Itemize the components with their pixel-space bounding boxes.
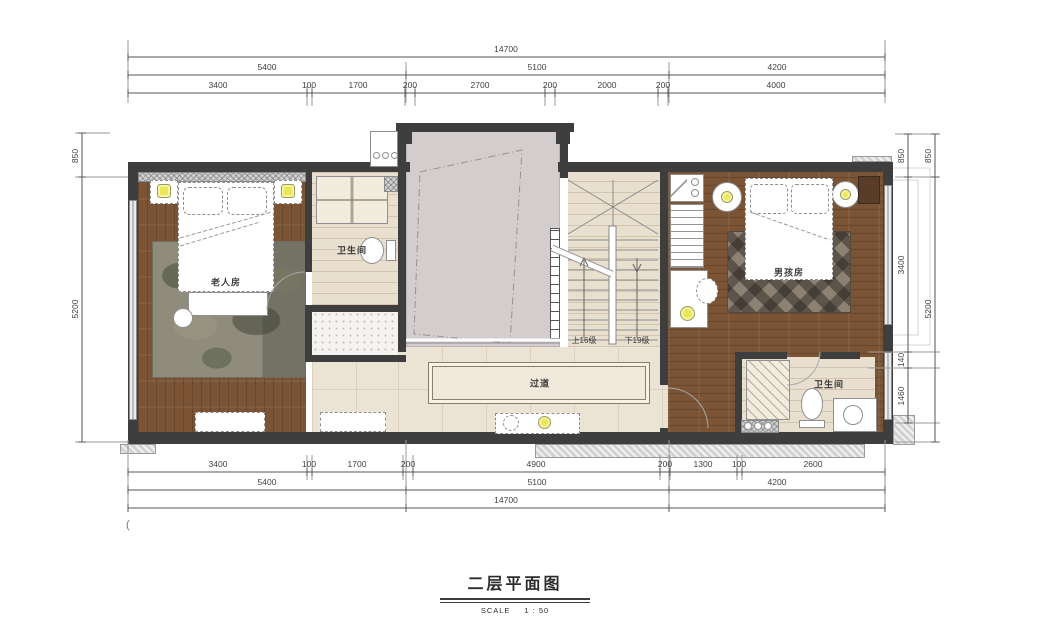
title-underline <box>440 598 590 600</box>
dim-label: 3400 <box>209 80 228 90</box>
dim-label: 200 <box>658 459 672 469</box>
dim-label: 200 <box>543 80 557 90</box>
dim-label: 4000 <box>767 80 786 90</box>
door-arc <box>668 388 708 428</box>
dim-label: 140 <box>896 353 906 367</box>
dim-label: 4200 <box>768 62 787 72</box>
dim-label: 5100 <box>528 477 547 487</box>
dim-label: 14700 <box>494 495 518 505</box>
scale-label: SCALE <box>481 606 511 615</box>
dim-label: 5400 <box>258 477 277 487</box>
drawing-title: 二层平面图 <box>440 574 590 596</box>
room-label-boy: 男孩房 <box>771 268 807 279</box>
dim-label: 2700 <box>471 80 490 90</box>
void-dashed-outline <box>414 150 522 343</box>
room-label-bath-right: 卫生间 <box>811 380 847 391</box>
dim-label: 14700 <box>494 44 518 54</box>
dim-label: 1700 <box>348 459 367 469</box>
dim-label: 1460 <box>896 386 906 405</box>
dim-label: 100 <box>302 80 316 90</box>
dim-label: 200 <box>401 459 415 469</box>
dim-label: 2600 <box>804 459 823 469</box>
dim-label: 2000 <box>598 80 617 90</box>
dim-label: 850 <box>896 149 906 163</box>
dim-label: 3400 <box>209 459 228 469</box>
dim-label: 100 <box>732 459 746 469</box>
stair-stringer <box>609 226 616 344</box>
room-label-elder: 老人房 <box>208 278 244 289</box>
floor-plan-canvas: 14700 5400 5100 4200 3400 100 1700 200 2… <box>0 0 1060 637</box>
stairs-up-label: 上16级 <box>572 337 597 345</box>
dim-label: 200 <box>656 80 670 90</box>
dim-label: 3400 <box>896 255 906 274</box>
dim-label: 850 <box>923 149 933 163</box>
door-arc <box>267 272 305 310</box>
dim-label: 200 <box>403 80 417 90</box>
dim-label: 5400 <box>258 62 277 72</box>
dim-label: 5100 <box>528 62 547 72</box>
dim-label: 1300 <box>694 459 713 469</box>
dim-label: 4200 <box>768 477 787 487</box>
stray-mark: ( <box>126 519 130 531</box>
dim-label: 4900 <box>527 459 546 469</box>
title-block: 二层平面图 SCALE 1 : 50 <box>440 574 590 615</box>
stairs-down-label: 下19级 <box>625 337 650 345</box>
dim-label: 850 <box>70 149 80 163</box>
title-underline-2 <box>440 602 590 603</box>
drawing-overlay: 14700 5400 5100 4200 3400 100 1700 200 2… <box>0 0 1060 637</box>
scale-value: 1 : 50 <box>524 606 549 615</box>
dim-label: 5200 <box>70 299 80 318</box>
dim-label: 100 <box>302 459 316 469</box>
room-label-corridor: 过道 <box>527 379 553 390</box>
room-label-bath-left: 卫生间 <box>334 246 370 257</box>
dim-label: 5200 <box>923 299 933 318</box>
dim-label: 1700 <box>349 80 368 90</box>
